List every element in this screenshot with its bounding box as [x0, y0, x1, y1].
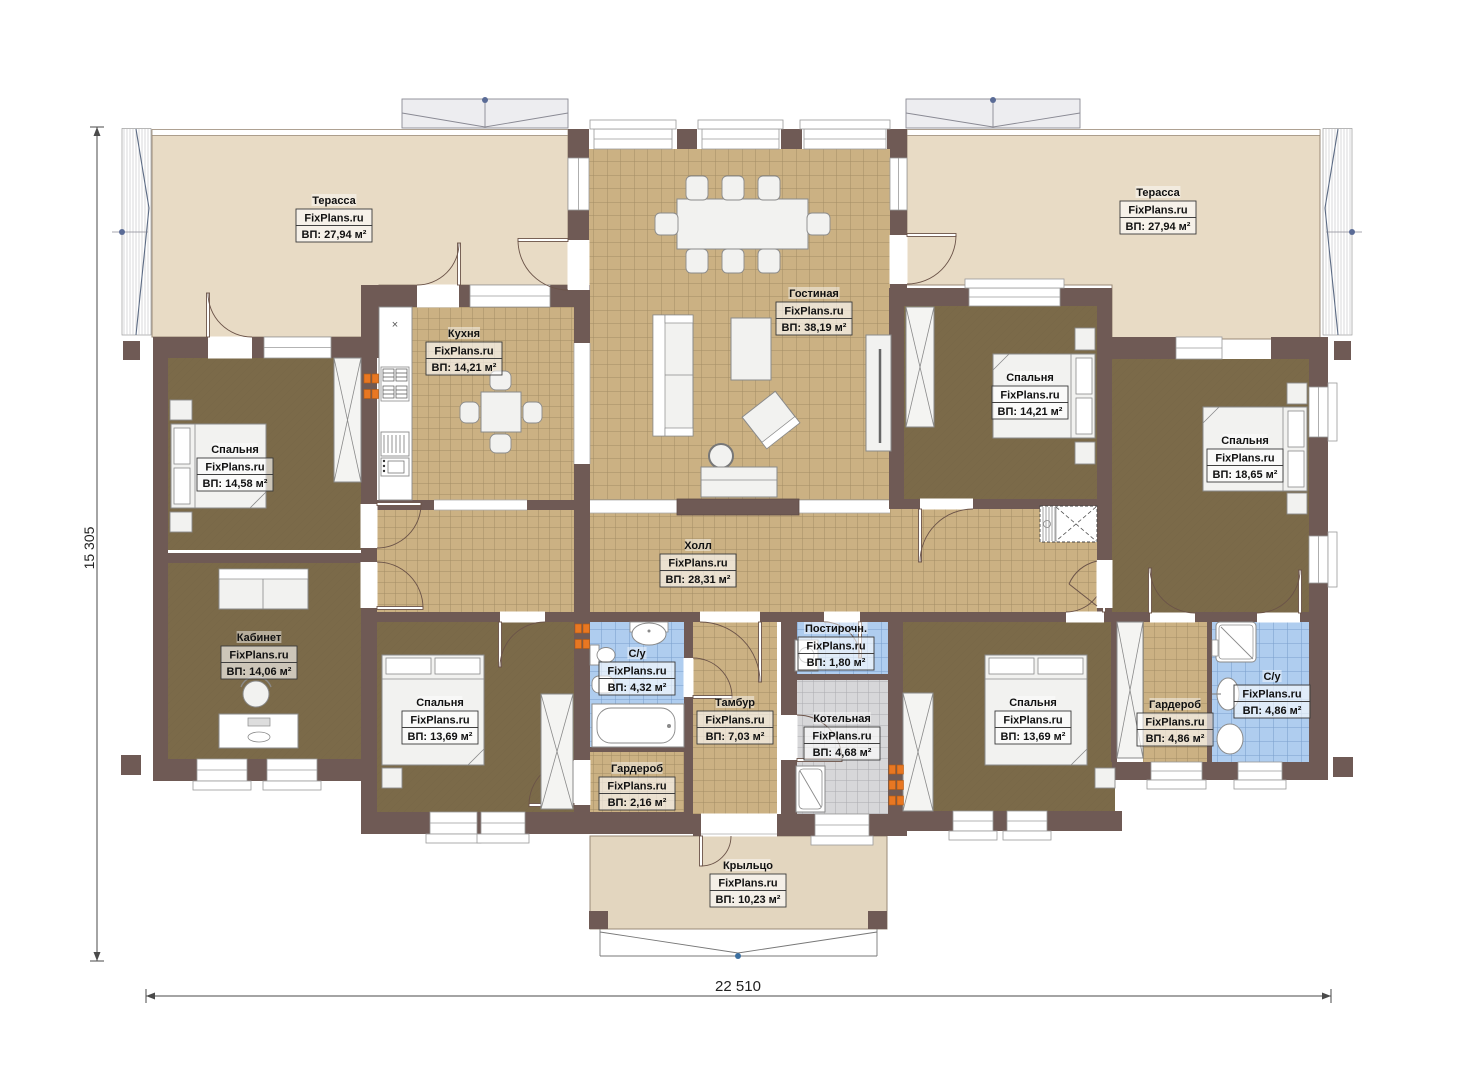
- svg-text:Кухня: Кухня: [448, 328, 480, 340]
- svg-text:ВП: 4,86 м²: ВП: 4,86 м²: [1243, 705, 1302, 717]
- svg-text:С/у: С/у: [1263, 671, 1281, 683]
- svg-text:22 510: 22 510: [715, 978, 761, 995]
- svg-text:Холл: Холл: [684, 540, 712, 552]
- svg-text:FixPlans.ru: FixPlans.ru: [607, 781, 666, 793]
- svg-text:FixPlans.ru: FixPlans.ru: [1145, 717, 1204, 729]
- svg-text:Спальня: Спальня: [1006, 372, 1054, 384]
- svg-text:FixPlans.ru: FixPlans.ru: [812, 731, 871, 743]
- svg-text:Терасса: Терасса: [1136, 187, 1180, 199]
- svg-text:FixPlans.ru: FixPlans.ru: [434, 346, 493, 358]
- svg-text:Постирочн.: Постирочн.: [805, 623, 867, 635]
- svg-text:С/у: С/у: [628, 648, 646, 660]
- svg-text:FixPlans.ru: FixPlans.ru: [784, 306, 843, 318]
- svg-text:FixPlans.ru: FixPlans.ru: [668, 558, 727, 570]
- svg-text:ВП: 4,68 м²: ВП: 4,68 м²: [813, 747, 872, 759]
- svg-text:ВП: 38,19 м²: ВП: 38,19 м²: [782, 322, 847, 334]
- svg-text:ВП: 14,06 м²: ВП: 14,06 м²: [227, 666, 292, 678]
- svg-text:ВП: 14,58 м²: ВП: 14,58 м²: [203, 478, 268, 490]
- svg-text:FixPlans.ru: FixPlans.ru: [705, 715, 764, 727]
- svg-text:ВП: 1,80 м²: ВП: 1,80 м²: [807, 657, 866, 669]
- svg-text:ВП: 27,94 м²: ВП: 27,94 м²: [1126, 221, 1191, 233]
- svg-text:Гостиная: Гостиная: [789, 288, 839, 300]
- svg-text:Крыльцо: Крыльцо: [723, 860, 773, 872]
- svg-text:FixPlans.ru: FixPlans.ru: [1242, 689, 1301, 701]
- svg-text:ВП: 7,03 м²: ВП: 7,03 м²: [706, 731, 765, 743]
- svg-text:FixPlans.ru: FixPlans.ru: [607, 666, 666, 678]
- svg-text:×: ×: [392, 319, 398, 331]
- svg-text:FixPlans.ru: FixPlans.ru: [1128, 205, 1187, 217]
- svg-text:ВП: 13,69 м²: ВП: 13,69 м²: [1001, 731, 1066, 743]
- svg-text:ВП: 13,69 м²: ВП: 13,69 м²: [408, 731, 473, 743]
- svg-text:FixPlans.ru: FixPlans.ru: [410, 715, 469, 727]
- svg-text:ВП: 14,21 м²: ВП: 14,21 м²: [998, 406, 1063, 418]
- svg-text:FixPlans.ru: FixPlans.ru: [229, 650, 288, 662]
- svg-text:Спальня: Спальня: [211, 444, 259, 456]
- svg-text:ВП: 10,23 м²: ВП: 10,23 м²: [716, 894, 781, 906]
- svg-text:ВП: 28,31 м²: ВП: 28,31 м²: [666, 574, 731, 586]
- svg-text:ВП: 27,94 м²: ВП: 27,94 м²: [302, 229, 367, 241]
- svg-text:Кабинет: Кабинет: [237, 632, 282, 644]
- svg-text:ВП: 4,32 м²: ВП: 4,32 м²: [608, 682, 667, 694]
- svg-text:Терасса: Терасса: [312, 195, 356, 207]
- svg-text:ВП: 4,86 м²: ВП: 4,86 м²: [1146, 733, 1205, 745]
- svg-text:Гардероб: Гардероб: [1149, 699, 1201, 711]
- svg-text:Спальня: Спальня: [1221, 435, 1269, 447]
- svg-text:Спальня: Спальня: [416, 697, 464, 709]
- svg-text:FixPlans.ru: FixPlans.ru: [1000, 390, 1059, 402]
- svg-text:FixPlans.ru: FixPlans.ru: [806, 641, 865, 653]
- svg-text:ВП: 18,65 м²: ВП: 18,65 м²: [1213, 469, 1278, 481]
- svg-text:FixPlans.ru: FixPlans.ru: [205, 462, 264, 474]
- svg-text:Тамбур: Тамбур: [715, 697, 755, 709]
- svg-text:Гардероб: Гардероб: [611, 763, 663, 775]
- svg-text:Котельная: Котельная: [813, 713, 871, 725]
- svg-text:15 305: 15 305: [81, 526, 97, 569]
- svg-text:ВП: 14,21 м²: ВП: 14,21 м²: [432, 362, 497, 374]
- svg-text:FixPlans.ru: FixPlans.ru: [1003, 715, 1062, 727]
- svg-text:ВП: 2,16 м²: ВП: 2,16 м²: [608, 797, 667, 809]
- svg-text:FixPlans.ru: FixPlans.ru: [1215, 453, 1274, 465]
- svg-text:Спальня: Спальня: [1009, 697, 1057, 709]
- svg-text:FixPlans.ru: FixPlans.ru: [718, 878, 777, 890]
- svg-text:FixPlans.ru: FixPlans.ru: [304, 213, 363, 225]
